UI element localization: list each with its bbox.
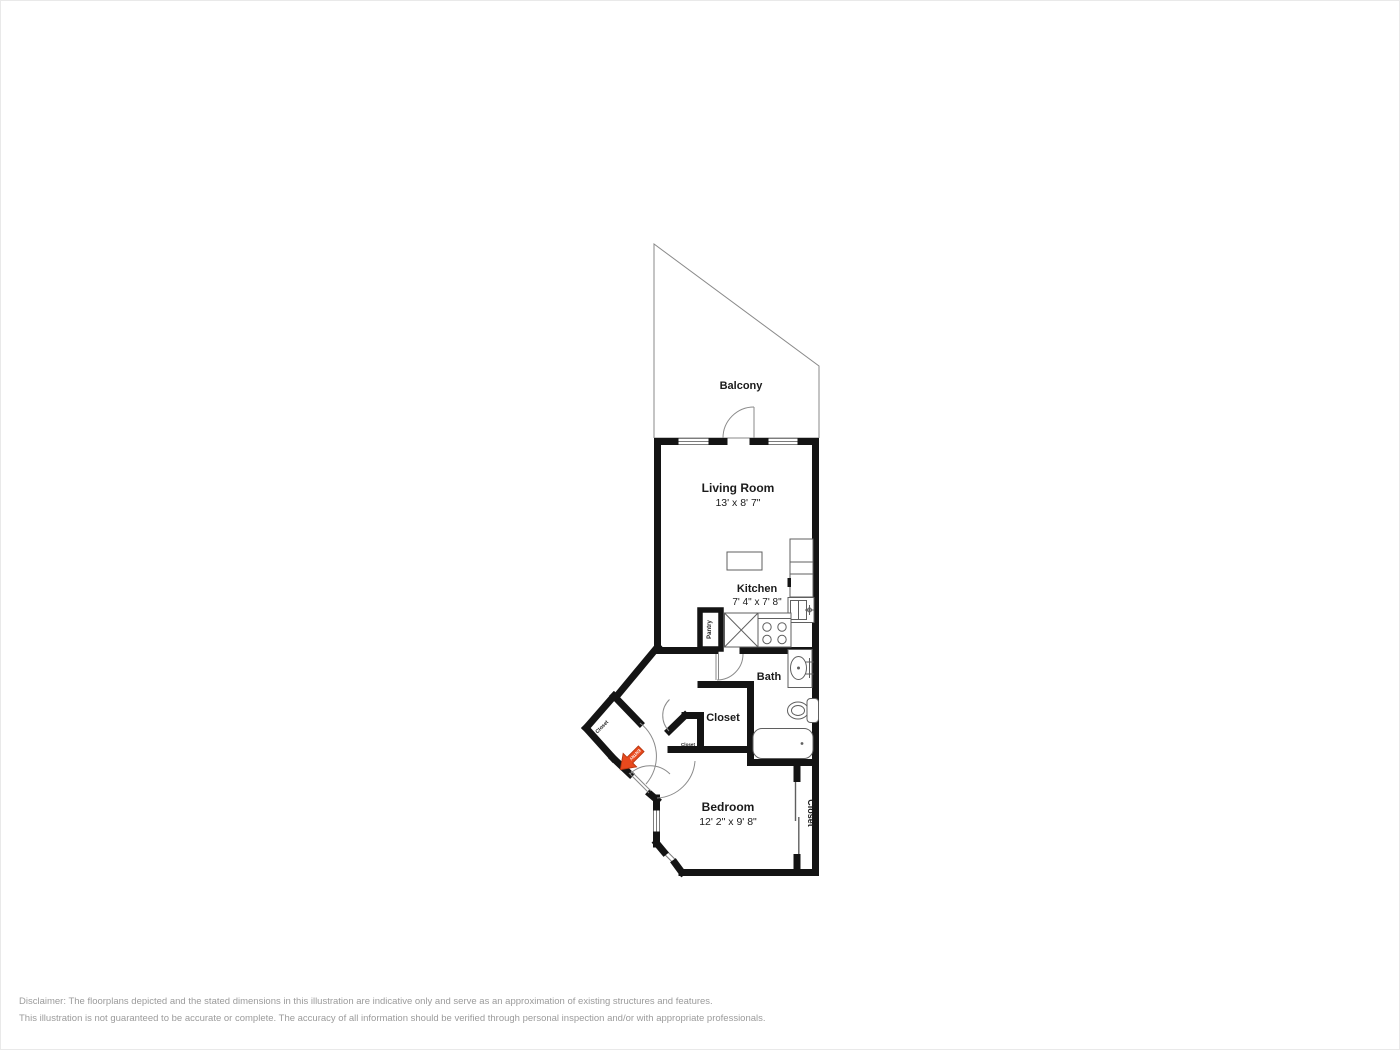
living-room-label: Living Room bbox=[702, 481, 775, 495]
bedroom-dims: 12' 2" x 9' 8" bbox=[699, 816, 757, 828]
counter-hinge-mark bbox=[788, 578, 792, 587]
kitchen-dims: 7' 4" x 7' 8" bbox=[732, 597, 782, 608]
bath-vanity bbox=[788, 650, 814, 688]
door-swings bbox=[629, 654, 743, 798]
kitchen-counter bbox=[790, 574, 813, 597]
hall-closet-label: Closet bbox=[706, 712, 740, 724]
living-room-dims: 13' x 8' 7" bbox=[715, 497, 760, 509]
floorplan-svg: Pantry bbox=[1, 1, 1400, 1050]
dishwasher bbox=[725, 613, 759, 647]
floorplan-page: Pantry bbox=[0, 0, 1400, 1050]
bath-door bbox=[716, 654, 743, 680]
bedroom-door-arc bbox=[657, 761, 695, 798]
kitchen-label: Kitchen bbox=[737, 583, 778, 595]
entry-closet-label: Closet bbox=[595, 719, 611, 735]
disclaimer-line-2: This illustration is not guaranteed to b… bbox=[19, 1013, 766, 1024]
bath-label: Bath bbox=[757, 671, 782, 683]
kitchen-sink bbox=[788, 598, 814, 623]
coat-closet-door-arc bbox=[663, 700, 670, 732]
balcony-label: Balcony bbox=[720, 380, 764, 392]
balcony-outline bbox=[654, 244, 819, 438]
bathtub bbox=[753, 729, 813, 759]
bedroom-label: Bedroom bbox=[702, 800, 755, 814]
stove bbox=[758, 613, 791, 647]
bedroom-closet-label: Closet bbox=[806, 799, 816, 827]
pantry-label: Pantry bbox=[707, 620, 713, 639]
toilet bbox=[788, 699, 819, 723]
kitchen-fridge bbox=[790, 539, 813, 574]
coat-closet-label: Closet bbox=[681, 742, 696, 747]
living-room-table bbox=[727, 552, 762, 570]
pantry-closet: Pantry bbox=[700, 610, 721, 649]
bath-fixtures bbox=[753, 650, 819, 759]
disclaimer-line-1: Disclaimer: The floorplans depicted and … bbox=[19, 996, 713, 1007]
balcony-door-arc bbox=[723, 407, 754, 438]
